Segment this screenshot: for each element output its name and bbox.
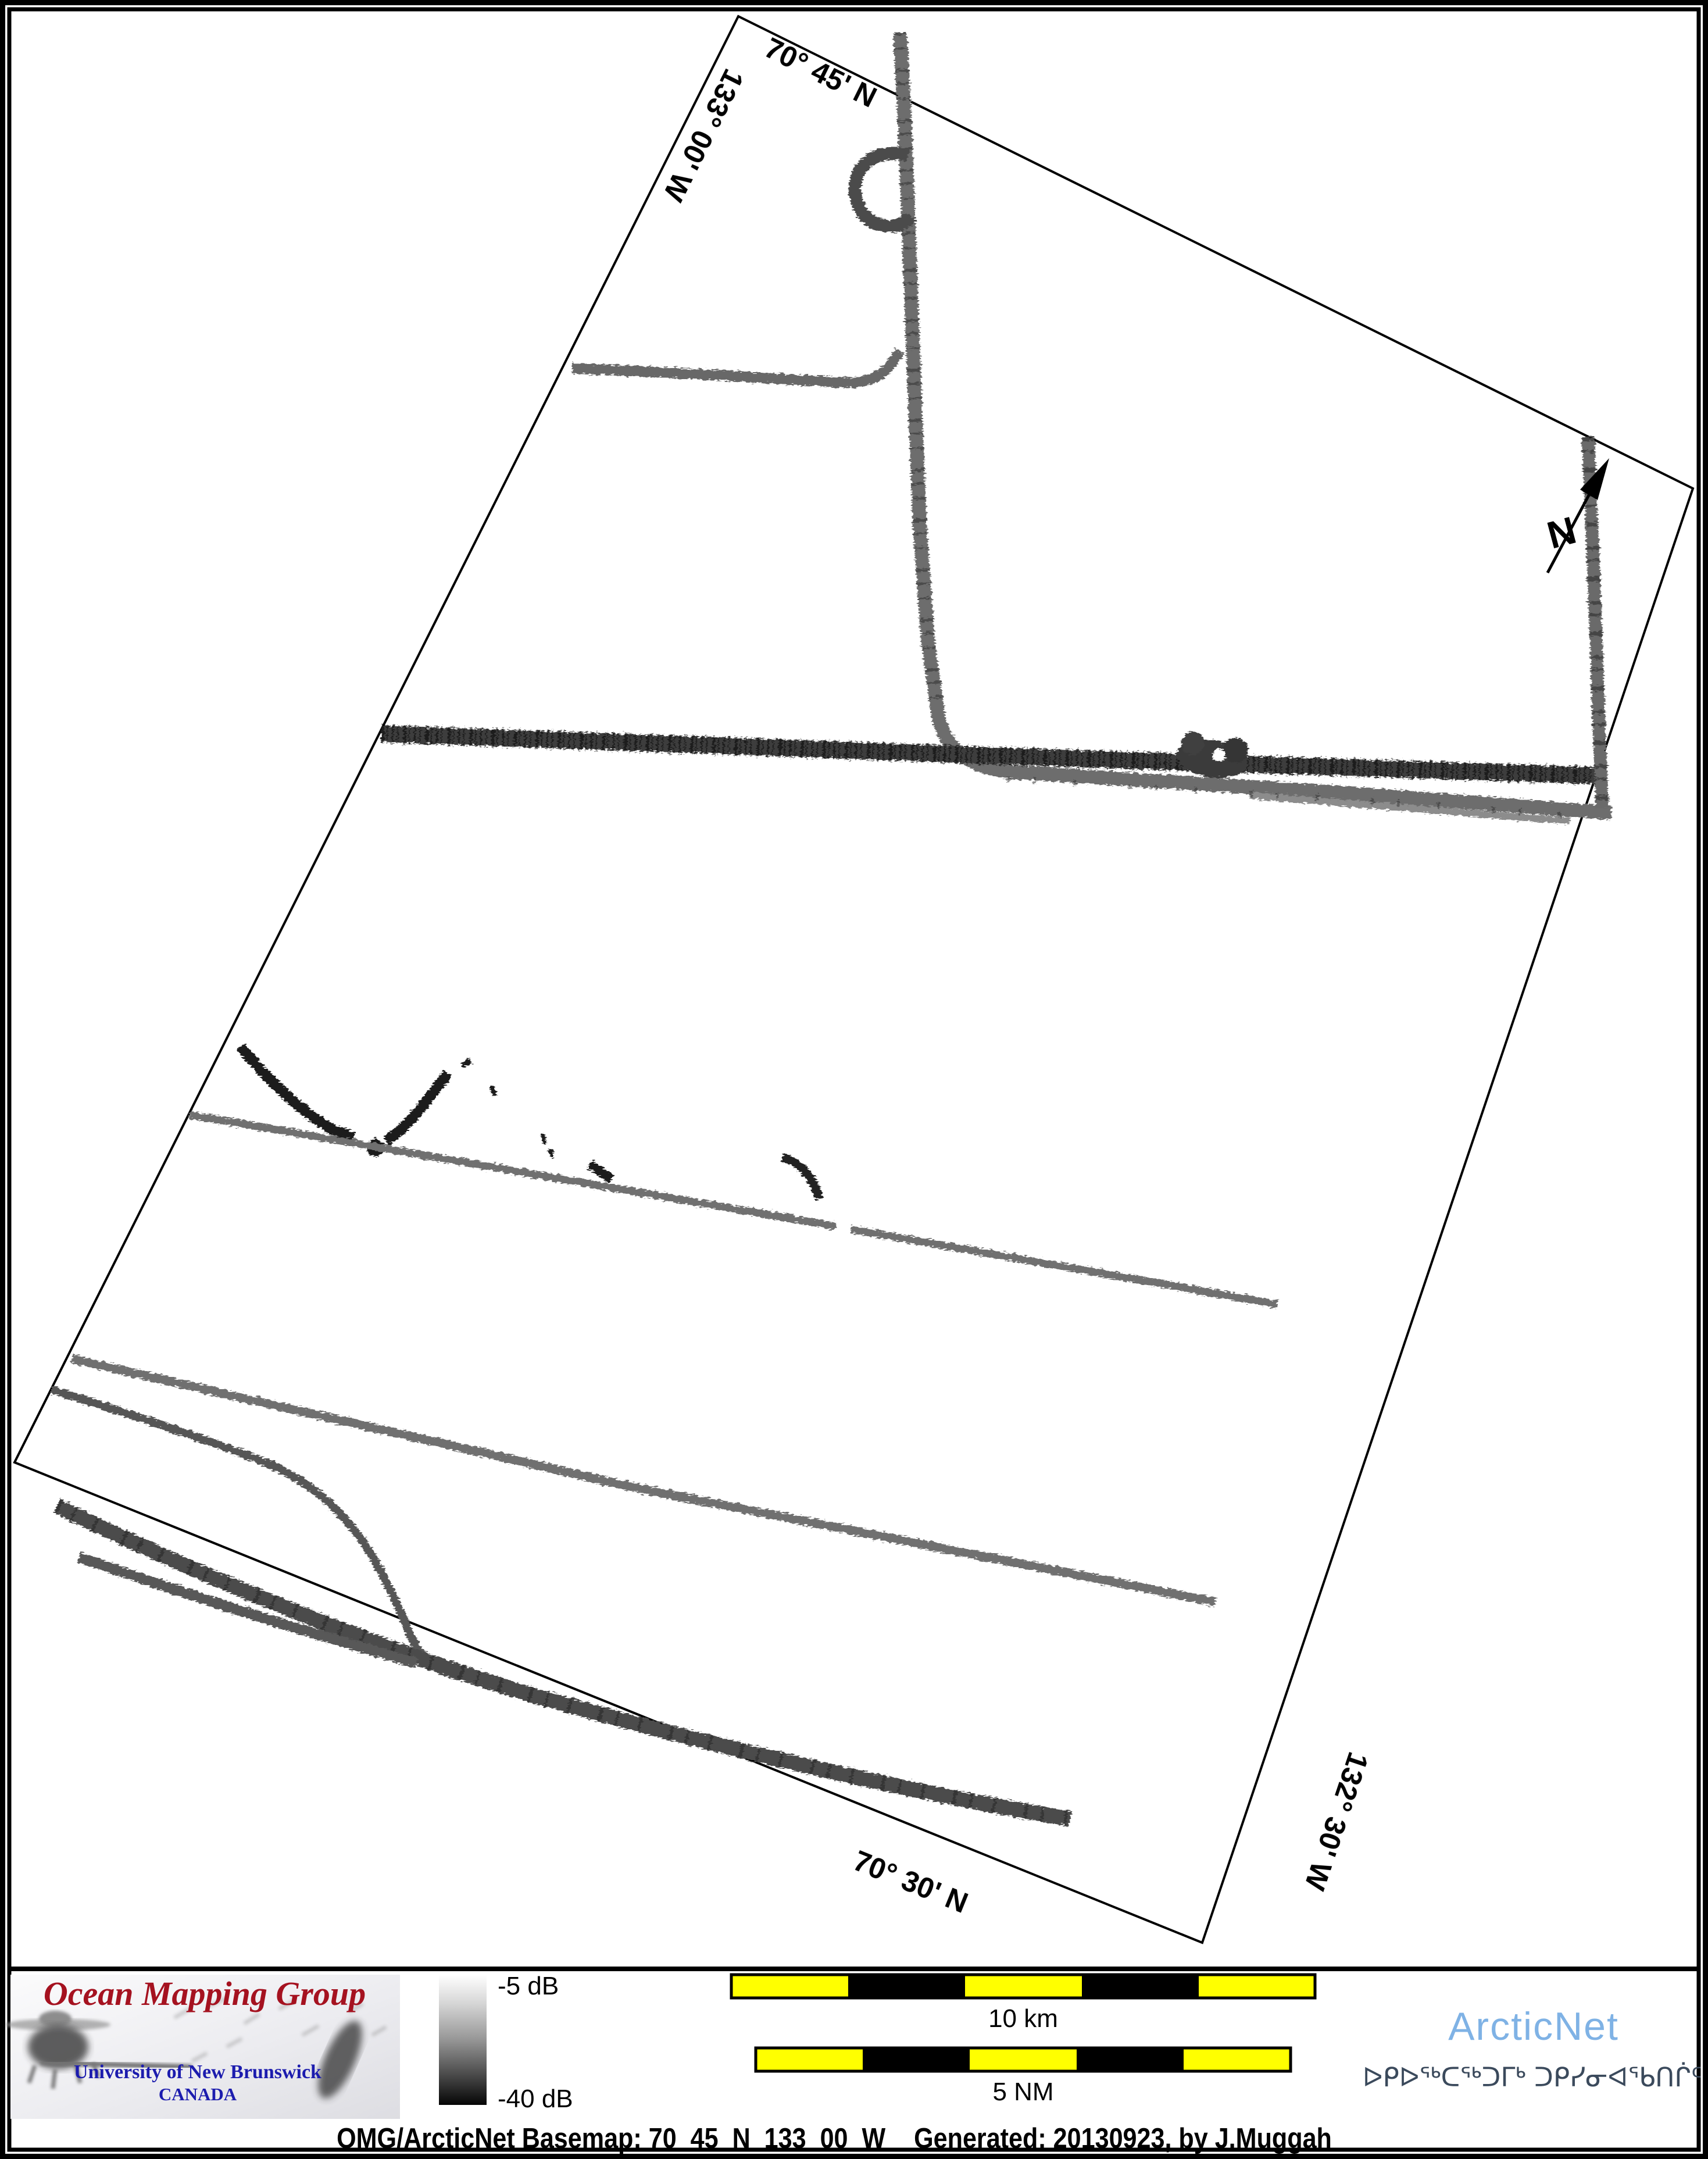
colorbar-bottom-sliver xyxy=(439,2105,487,2112)
arcticnet-inuktitut: ᐅᑭᐅᖅᑕᖅᑐᒥᒃ ᑐᑭᓯᓂᐊᖃᑎᒌᑦ xyxy=(1363,2062,1702,2093)
legend-separator xyxy=(10,1967,1698,1971)
scalebar-nm-label: 5 NM xyxy=(992,2078,1053,2106)
colorbar-gradient xyxy=(439,1975,487,2105)
omg-title: Ocean Mapping Group xyxy=(44,1975,366,2012)
omg-country: CANADA xyxy=(159,2084,237,2104)
arcticnet-name: ArcticNet xyxy=(1448,2004,1619,2049)
scalebar-km-label: 10 km xyxy=(988,2004,1058,2033)
map-frame-quad xyxy=(15,16,1693,1943)
frame-label-right-lon: 132° 30' W xyxy=(1298,1748,1375,1894)
basemap-page: 70° 45' N 133° 00' W 70° 30' N 132° 30' … xyxy=(0,0,1708,2159)
footer-caption-generated: Generated: 20130923, by J.Muggah xyxy=(914,2122,1332,2154)
scalebar-nm: 5 NM xyxy=(756,2048,1291,2106)
footer-caption-basemap: OMG/ArcticNet Basemap: 70_45_N_133_00_W xyxy=(337,2122,885,2154)
basemap-canvas: 70° 45' N 133° 00' W 70° 30' N 132° 30' … xyxy=(0,0,1708,2159)
arcticnet-logo: ArcticNet ᐅᑭᐅᖅᑕᖅᑐᒥᒃ ᑐᑭᓯᓂᐊᖃᑎᒌᑦ xyxy=(1363,2004,1702,2093)
omg-university: University of New Brunswick xyxy=(74,2061,321,2083)
colorbar-top-label: -5 dB xyxy=(498,1972,559,2000)
colorbar: -5 dB -40 dB xyxy=(439,1972,573,2113)
footer-caption: OMG/ArcticNet Basemap: 70_45_N_133_00_W … xyxy=(337,2122,1332,2154)
survey-track-dash-1 xyxy=(462,1061,471,1065)
frame-label-bottom-lat: 70° 30' N xyxy=(849,1844,973,1919)
omg-logo: Ocean Mapping Group University of New Br… xyxy=(6,1975,400,2119)
scalebar-km: 10 km xyxy=(731,1975,1315,2033)
colorbar-bottom-label: -40 dB xyxy=(498,2085,573,2113)
